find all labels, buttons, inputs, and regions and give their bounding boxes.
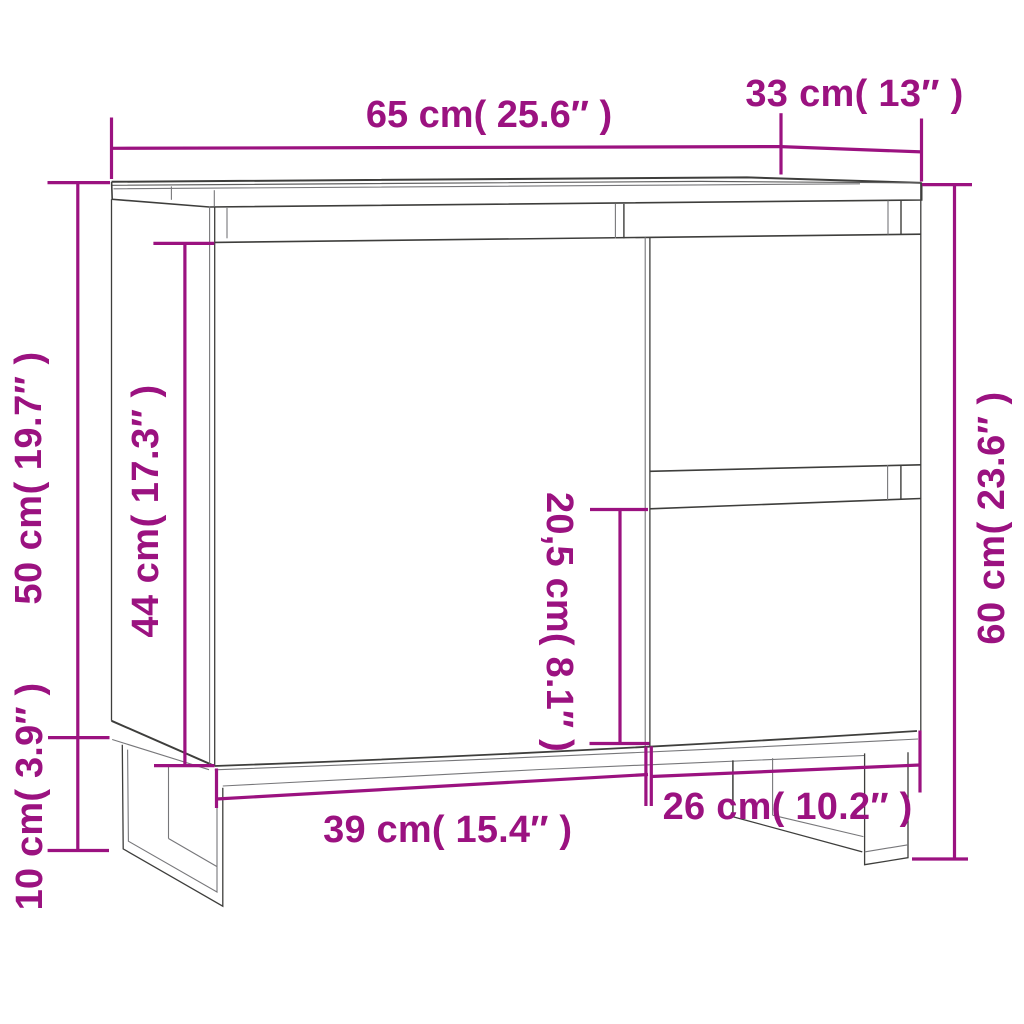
svg-text:33 cm( 13″ ): 33 cm( 13″ )	[745, 73, 963, 115]
svg-text:26 cm( 10.2″ ): 26 cm( 10.2″ )	[663, 786, 913, 828]
svg-text:39 cm( 15.4″ ): 39 cm( 15.4″ )	[323, 809, 572, 851]
svg-text:60 cm( 23.6″ ): 60 cm( 23.6″ )	[971, 391, 1013, 644]
svg-text:10 cm( 3.9″ ): 10 cm( 3.9″ )	[9, 683, 51, 911]
svg-text:50 cm( 19.7″ ): 50 cm( 19.7″ )	[8, 351, 50, 604]
svg-text:44 cm( 17.3″ ): 44 cm( 17.3″ )	[125, 384, 167, 637]
svg-text:65 cm( 25.6″ ): 65 cm( 25.6″ )	[366, 94, 612, 136]
svg-text:20,5 cm( 8.1″ ): 20,5 cm( 8.1″ )	[538, 492, 580, 752]
